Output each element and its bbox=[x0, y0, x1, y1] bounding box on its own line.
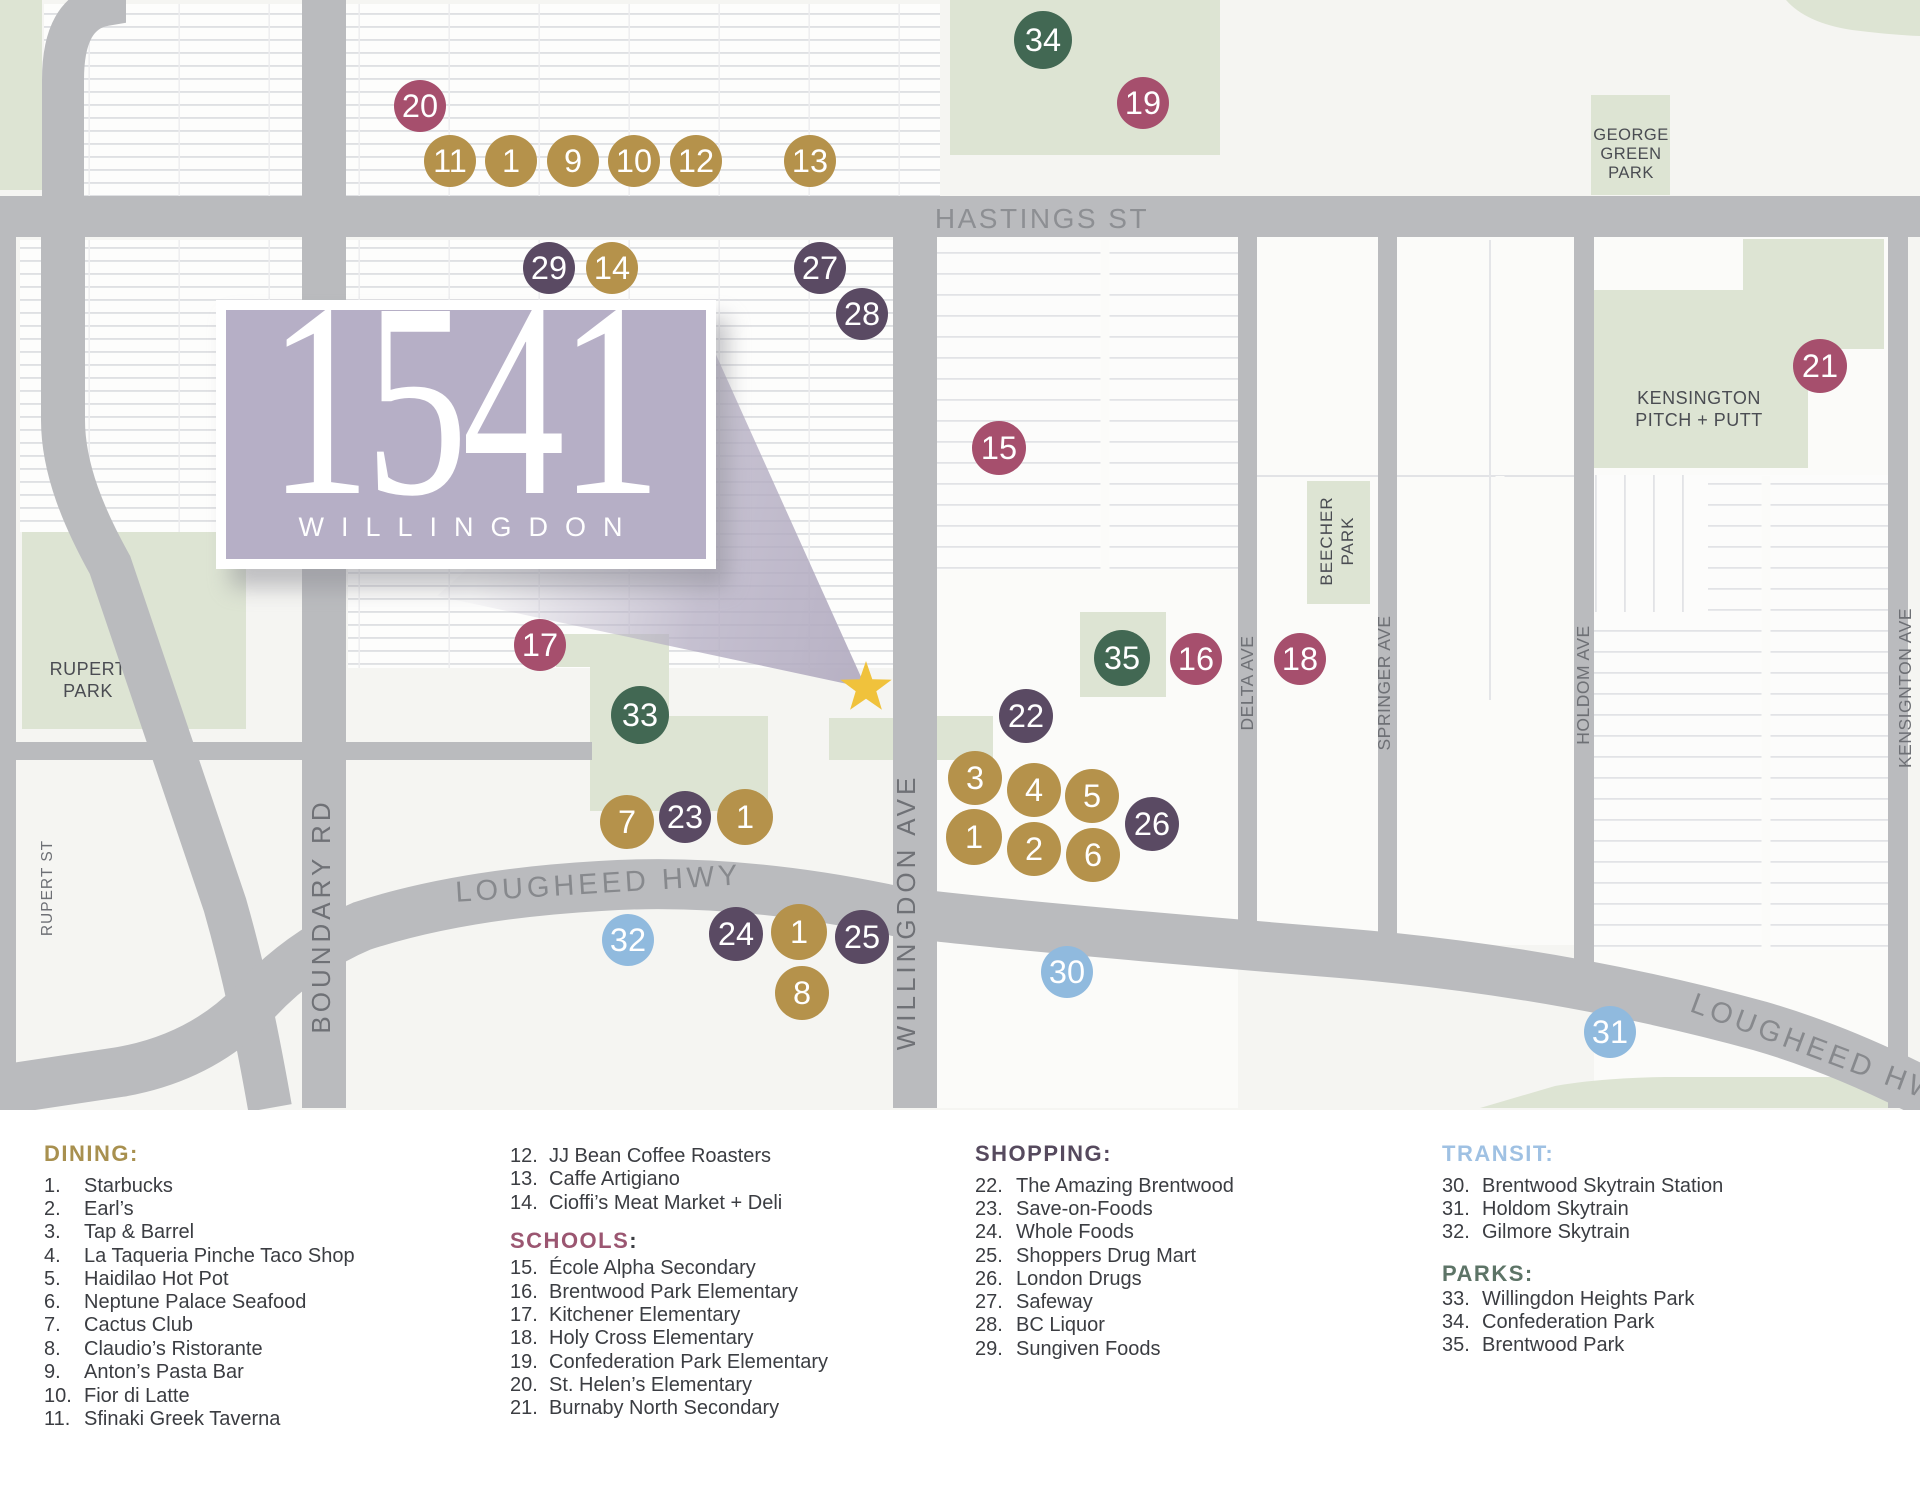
svg-text:1: 1 bbox=[965, 819, 983, 855]
svg-text:34: 34 bbox=[1025, 22, 1061, 58]
svg-text:WILLINGDON AVE: WILLINGDON AVE bbox=[891, 774, 921, 1051]
svg-text:17: 17 bbox=[522, 627, 558, 663]
svg-text:1: 1 bbox=[736, 799, 754, 835]
svg-text:PITCH + PUTT: PITCH + PUTT bbox=[1635, 410, 1763, 430]
svg-text:PARK: PARK bbox=[63, 681, 113, 701]
svg-text:21: 21 bbox=[1802, 348, 1838, 384]
svg-text:KENSIGNTON AVE: KENSIGNTON AVE bbox=[1895, 608, 1915, 768]
svg-text:4: 4 bbox=[1025, 772, 1043, 808]
svg-text:15: 15 bbox=[981, 430, 1017, 466]
svg-text:30: 30 bbox=[1049, 954, 1085, 990]
svg-text:24: 24 bbox=[718, 916, 754, 952]
svg-text:GEORGE: GEORGE bbox=[1593, 126, 1668, 144]
svg-text:28: 28 bbox=[844, 296, 880, 332]
svg-text:HOLDOM AVE: HOLDOM AVE bbox=[1573, 625, 1593, 744]
svg-text:RUPERT: RUPERT bbox=[50, 659, 127, 679]
svg-text:SPRINGER AVE: SPRINGER AVE bbox=[1374, 615, 1394, 750]
svg-text:RUPERT ST: RUPERT ST bbox=[39, 840, 56, 936]
svg-text:7: 7 bbox=[618, 804, 636, 840]
svg-text:10: 10 bbox=[616, 143, 652, 179]
svg-text:31: 31 bbox=[1592, 1014, 1628, 1050]
svg-text:1: 1 bbox=[502, 143, 520, 179]
svg-text:5: 5 bbox=[1083, 778, 1101, 814]
svg-text:29: 29 bbox=[531, 250, 567, 286]
svg-text:3: 3 bbox=[966, 760, 984, 796]
svg-text:BOUNDARY RD: BOUNDARY RD bbox=[306, 798, 336, 1033]
svg-text:KENSINGTON: KENSINGTON bbox=[1637, 388, 1761, 408]
svg-text:1541: 1541 bbox=[268, 245, 656, 553]
svg-text:16: 16 bbox=[1178, 641, 1214, 677]
svg-text:35: 35 bbox=[1104, 640, 1140, 676]
svg-text:PARK: PARK bbox=[1338, 516, 1357, 565]
svg-text:18: 18 bbox=[1282, 641, 1318, 677]
svg-text:11: 11 bbox=[433, 143, 467, 179]
svg-text:GREEN: GREEN bbox=[1600, 145, 1661, 163]
svg-text:8: 8 bbox=[793, 975, 811, 1011]
svg-text:13: 13 bbox=[792, 143, 828, 179]
svg-text:22: 22 bbox=[1008, 698, 1044, 734]
svg-text:12: 12 bbox=[678, 143, 714, 179]
svg-text:9: 9 bbox=[564, 143, 582, 179]
svg-text:32: 32 bbox=[610, 922, 646, 958]
svg-text:PARK: PARK bbox=[1608, 164, 1654, 182]
svg-text:WILLINGDON: WILLINGDON bbox=[298, 512, 639, 542]
svg-text:20: 20 bbox=[402, 88, 438, 124]
svg-text:HASTINGS ST: HASTINGS ST bbox=[935, 203, 1149, 234]
svg-text:DELTA AVE: DELTA AVE bbox=[1237, 636, 1257, 731]
svg-text:33: 33 bbox=[622, 697, 658, 733]
svg-text:27: 27 bbox=[802, 250, 838, 286]
svg-text:14: 14 bbox=[594, 250, 630, 286]
svg-text:6: 6 bbox=[1084, 837, 1102, 873]
svg-text:26: 26 bbox=[1134, 806, 1170, 842]
svg-text:19: 19 bbox=[1125, 85, 1161, 121]
svg-text:2: 2 bbox=[1025, 831, 1043, 867]
svg-text:23: 23 bbox=[667, 799, 703, 835]
svg-text:1: 1 bbox=[790, 914, 808, 950]
svg-text:BEECHER: BEECHER bbox=[1317, 496, 1336, 585]
svg-text:25: 25 bbox=[844, 919, 880, 955]
